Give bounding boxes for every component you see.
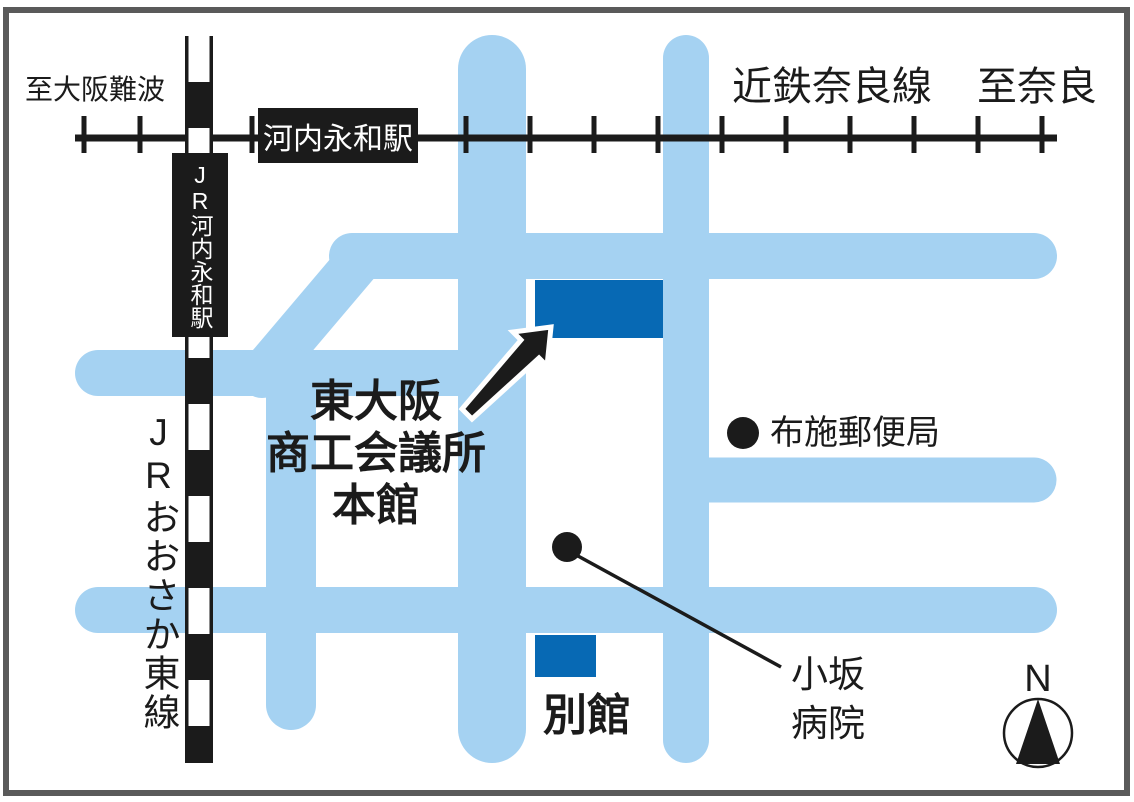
kintetsu-station-label: 河内永和駅 xyxy=(263,114,413,158)
post-office-label: 布施郵便局 xyxy=(770,416,940,450)
kintetsu-station-box: 河内永和駅 xyxy=(258,108,418,163)
main-building-label-line3: 本館 xyxy=(256,480,496,532)
direction-label-nara: 至奈良 xyxy=(977,67,1097,107)
kintetsu-railway-shape xyxy=(75,116,1057,153)
jr-line-label: JRおおさか東線 xyxy=(140,412,177,732)
annex-building-label: 別館 xyxy=(543,694,631,738)
kintetsu-line-label: 近鉄奈良線 xyxy=(732,67,932,107)
main-building-shape xyxy=(535,280,663,338)
hospital-label-line2: 病院 xyxy=(758,699,898,748)
hospital-label: 小坂 病院 xyxy=(758,650,898,748)
access-map: 至大阪難波 近鉄奈良線 至奈良 河内永和駅 JR河内永和駅 JRおおさか東線 東… xyxy=(0,0,1134,802)
annex-building-shape xyxy=(535,635,596,677)
hospital-label-line1: 小坂 xyxy=(758,650,898,699)
main-building-label: 東大阪 商工会議所 本館 xyxy=(256,376,496,532)
direction-label-osaka-namba: 至大阪難波 xyxy=(25,76,165,104)
jr-station-box: JR河内永和駅 xyxy=(172,153,228,337)
hospital-dot-icon xyxy=(552,532,582,562)
jr-station-label: JR河内永和駅 xyxy=(183,162,217,329)
compass-north-label: N xyxy=(1018,660,1058,698)
compass-icon xyxy=(1004,699,1072,767)
main-building-label-line2: 商工会議所 xyxy=(256,428,496,480)
post-office-dot-icon xyxy=(727,417,759,449)
main-building-label-line1: 東大阪 xyxy=(256,376,496,428)
